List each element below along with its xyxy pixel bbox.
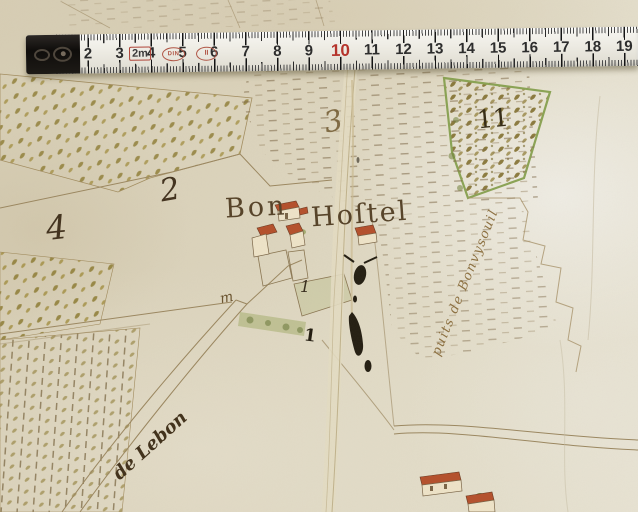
ruler-end-cap [26, 35, 81, 75]
ruler-number: 18 [580, 38, 606, 55]
ruler-number: 8 [264, 43, 290, 60]
cap-rivet-icon [34, 49, 50, 61]
parcel-number-11: 11 [476, 103, 510, 135]
parcel-number-1: 1 [300, 277, 310, 296]
map-photograph: 4 2 3 11 1 1 Bon Hoſtel puits de Bonvyso… [0, 0, 638, 512]
ruler-number: 16 [517, 39, 543, 56]
ruler-number: 19 [611, 38, 637, 55]
ruler-number: 2 [75, 45, 101, 62]
paper-grain-texture [0, 0, 638, 512]
ruler-2m-mark: 2m [129, 47, 151, 61]
ruler-number: 14 [453, 40, 479, 57]
ruler-number: 9 [296, 42, 322, 59]
ruler-number: 15 [485, 39, 511, 56]
map-artwork-layer [0, 0, 638, 512]
ruler-number: 11 [359, 41, 385, 58]
ruler-number: 17 [548, 39, 574, 56]
ruler-number: 10 [327, 41, 353, 61]
ruler-number: 12 [390, 41, 416, 58]
ruler-number: 7 [233, 43, 259, 60]
cap-rivet-icon [53, 47, 72, 62]
parcel-number-4: 4 [44, 207, 69, 248]
hamlet-name-word1: Bon [224, 190, 288, 224]
ruler-number: 13 [422, 40, 448, 57]
